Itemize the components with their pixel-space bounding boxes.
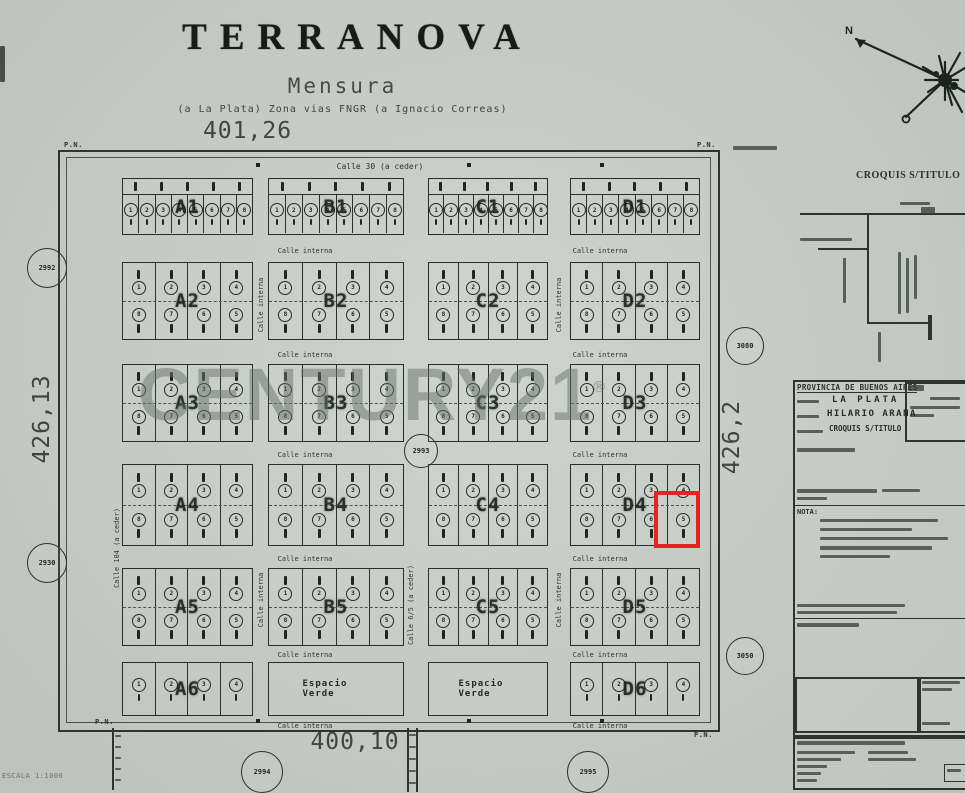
lot-measure-mark bbox=[308, 182, 311, 191]
lot-measure-mark bbox=[202, 270, 205, 279]
lot-measure-mark bbox=[351, 324, 354, 333]
lot-parcel: 5 bbox=[370, 301, 403, 339]
lot-measure-mark bbox=[617, 529, 620, 538]
street-label-vertical: Calle 6/5 (a ceder) bbox=[407, 565, 415, 645]
lot-number: 8 bbox=[580, 308, 594, 322]
lot-measure-mark bbox=[351, 529, 354, 538]
lot-measure-mark bbox=[442, 270, 445, 279]
lot-number: 4 bbox=[229, 484, 243, 498]
lot-measure-mark bbox=[137, 630, 140, 639]
lot-measure-mark bbox=[202, 473, 205, 482]
lot-number: 4 bbox=[229, 587, 243, 601]
lot-measure-mark bbox=[501, 270, 504, 279]
lot-measure-mark bbox=[465, 219, 467, 225]
lot-measure-mark bbox=[134, 182, 137, 191]
lot-measure-mark bbox=[617, 630, 620, 639]
lot-number: 1 bbox=[572, 203, 586, 217]
lot-number: 2 bbox=[444, 203, 458, 217]
lot-number: 3 bbox=[304, 203, 318, 217]
lot-measure-mark bbox=[202, 576, 205, 585]
lot-measure-mark bbox=[617, 426, 620, 435]
lot-number: 8 bbox=[580, 513, 594, 527]
lot-number: 7 bbox=[371, 203, 385, 217]
lot-measure-mark bbox=[227, 219, 229, 225]
lot-measure-mark bbox=[650, 372, 653, 381]
lot-number: 7 bbox=[668, 203, 682, 217]
espacio-verde-block: Espacio Verde bbox=[428, 662, 548, 716]
street-label-calle-interna: Calle interna bbox=[278, 555, 333, 563]
lot-measure-mark bbox=[682, 576, 685, 585]
lot-measure-mark bbox=[318, 270, 321, 279]
lot-measure-mark bbox=[195, 219, 197, 225]
lot-number: 8 bbox=[684, 203, 698, 217]
lot-measure-mark bbox=[450, 219, 452, 225]
lot-measure-mark bbox=[243, 219, 245, 225]
lot-measure-mark bbox=[137, 270, 140, 279]
lot-parcel: 1 bbox=[571, 263, 602, 301]
lot-number: 1 bbox=[436, 484, 450, 498]
lot-number: 5 bbox=[676, 614, 690, 628]
lot-parcel: 4 bbox=[221, 663, 253, 715]
lot-measure-mark bbox=[318, 529, 321, 538]
block-label-A2: A2 bbox=[175, 290, 200, 312]
lot-parcel: 5 bbox=[221, 607, 253, 645]
lot-parcel: 2 bbox=[587, 195, 603, 233]
lot-parcel: 8 bbox=[571, 505, 602, 545]
lot-parcel: 4 bbox=[668, 569, 699, 607]
lot-parcel: 7 bbox=[519, 195, 534, 233]
lot-measure-mark bbox=[442, 324, 445, 333]
lot-parcel: 1 bbox=[269, 465, 302, 505]
lot-measure-mark bbox=[650, 270, 653, 279]
lot-measure-mark bbox=[202, 630, 205, 639]
lot-number: 4 bbox=[380, 587, 394, 601]
lot-number: 4 bbox=[526, 281, 540, 295]
lot-number: 8 bbox=[132, 614, 146, 628]
lot-parcel: 3 bbox=[156, 195, 172, 233]
lot-number: 1 bbox=[278, 587, 292, 601]
lot-measure-mark bbox=[501, 630, 504, 639]
block-label-A5: A5 bbox=[175, 596, 200, 618]
block-C1: 12345678C1 bbox=[428, 178, 548, 235]
street-label-vertical: Calle 104 (a ceder) bbox=[113, 508, 121, 588]
block-label-B2: B2 bbox=[324, 290, 349, 312]
block-label-B1: B1 bbox=[324, 196, 349, 218]
lot-parcel: 1 bbox=[123, 465, 155, 505]
lot-measure-mark bbox=[170, 324, 173, 333]
block-label-D6: D6 bbox=[623, 678, 648, 700]
lot-number: 1 bbox=[132, 281, 146, 295]
lot-measure-mark bbox=[318, 576, 321, 585]
lot-measure-mark bbox=[501, 324, 504, 333]
lot-number: 5 bbox=[229, 614, 243, 628]
lot-measure-mark bbox=[170, 529, 173, 538]
road-hatch bbox=[115, 757, 121, 759]
lot-parcel: 2 bbox=[286, 195, 303, 233]
espacio-verde-label: Espacio Verde bbox=[459, 679, 518, 699]
lot-measure-mark bbox=[501, 473, 504, 482]
lot-parcel: 4 bbox=[518, 263, 547, 301]
lot-measure-mark bbox=[585, 473, 588, 482]
lot-number: 8 bbox=[534, 203, 548, 217]
lot-number: 6 bbox=[205, 203, 219, 217]
lot-number: 8 bbox=[436, 614, 450, 628]
lot-parcel: 3 bbox=[603, 195, 619, 233]
lot-parcel: 6 bbox=[353, 195, 370, 233]
block-label-B5: B5 bbox=[324, 596, 349, 618]
lot-number: 8 bbox=[237, 203, 251, 217]
lot-measure-mark bbox=[385, 630, 388, 639]
lot-measure-mark bbox=[284, 630, 287, 639]
lot-measure-mark bbox=[138, 694, 140, 701]
lot-measure-mark bbox=[650, 473, 653, 482]
block-D6: 1234D6 bbox=[570, 662, 700, 716]
block-label-D2: D2 bbox=[623, 290, 648, 312]
lot-dimension-band bbox=[123, 179, 252, 195]
lot-measure-mark bbox=[585, 576, 588, 585]
lot-parcel: 5 bbox=[518, 607, 547, 645]
street-label-calle-30: Calle 30 (a ceder) bbox=[337, 162, 424, 171]
lot-parcel: 1 bbox=[269, 569, 302, 607]
lot-parcel: 5 bbox=[221, 505, 253, 545]
block-A2: 18273645A2 bbox=[122, 262, 253, 340]
lot-measure-mark bbox=[582, 182, 585, 191]
lot-measure-mark bbox=[327, 219, 329, 225]
block-label-D3: D3 bbox=[623, 392, 648, 414]
lot-parcel: 8 bbox=[429, 505, 458, 545]
lot-measure-mark bbox=[394, 219, 396, 225]
lot-measure-mark bbox=[318, 630, 321, 639]
lot-number: 2 bbox=[140, 203, 154, 217]
lot-parcel: 8 bbox=[429, 301, 458, 339]
lot-number: 8 bbox=[580, 614, 594, 628]
lot-measure-mark bbox=[480, 219, 482, 225]
block-D2: 18273645D2 bbox=[570, 262, 700, 340]
parcel-circle-2930: 2930 bbox=[27, 543, 67, 583]
block-A1: 12345678A1 bbox=[122, 178, 253, 235]
lot-number: 3 bbox=[156, 203, 170, 217]
lot-measure-mark bbox=[617, 576, 620, 585]
lot-number: 8 bbox=[436, 308, 450, 322]
lot-measure-mark bbox=[626, 219, 628, 225]
lot-measure-mark bbox=[585, 529, 588, 538]
lot-number: 4 bbox=[229, 678, 243, 692]
lot-parcel: 4 bbox=[370, 465, 403, 505]
block-label-A4: A4 bbox=[175, 494, 200, 516]
lot-measure-mark bbox=[318, 473, 321, 482]
lot-measure-mark bbox=[351, 630, 354, 639]
lot-measure-mark bbox=[284, 324, 287, 333]
lot-parcel: 5 bbox=[518, 505, 547, 545]
lot-measure-mark bbox=[531, 630, 534, 639]
lot-measure-mark bbox=[377, 219, 379, 225]
lot-measure-mark bbox=[130, 219, 132, 225]
block-label-A6: A6 bbox=[175, 678, 200, 700]
lot-parcel: 8 bbox=[269, 301, 302, 339]
lot-number: 1 bbox=[436, 281, 450, 295]
road-hatch bbox=[409, 734, 416, 736]
lot-number: 8 bbox=[436, 513, 450, 527]
lot-parcel: 8 bbox=[429, 607, 458, 645]
street-label-vertical: Calle interna bbox=[257, 278, 265, 333]
lot-measure-mark bbox=[351, 473, 354, 482]
lot-number: 4 bbox=[380, 484, 394, 498]
lot-measure-mark bbox=[594, 219, 596, 225]
lot-number: 5 bbox=[380, 308, 394, 322]
lot-measure-mark bbox=[388, 182, 391, 191]
lot-measure-mark bbox=[442, 529, 445, 538]
lot-measure-mark bbox=[682, 630, 685, 639]
lot-measure-mark bbox=[617, 473, 620, 482]
road-hatch bbox=[115, 735, 121, 737]
lot-parcel: 7 bbox=[370, 195, 387, 233]
lot-number: 8 bbox=[278, 513, 292, 527]
scanned-survey-plan: TERRANOVA Mensura (a La Plata) Zona vias… bbox=[0, 0, 965, 793]
intersection-tick bbox=[256, 163, 260, 167]
lot-dimension-band bbox=[429, 179, 547, 195]
lot-parcel: 4 bbox=[668, 365, 699, 403]
lot-measure-mark bbox=[495, 219, 497, 225]
lot-measure-mark bbox=[202, 324, 205, 333]
lot-measure-mark bbox=[351, 576, 354, 585]
street-label-calle-interna: Calle interna bbox=[573, 722, 628, 730]
lot-parcel: 4 bbox=[518, 465, 547, 505]
lot-measure-mark bbox=[531, 576, 534, 585]
lot-measure-mark bbox=[276, 219, 278, 225]
road-hatch bbox=[115, 768, 121, 770]
lot-number: 7 bbox=[221, 203, 235, 217]
lot-number: 4 bbox=[676, 587, 690, 601]
street-label-calle-interna: Calle interna bbox=[573, 555, 628, 563]
street-label-calle-interna: Calle interna bbox=[278, 247, 333, 255]
lot-measure-mark bbox=[472, 324, 475, 333]
intersection-tick bbox=[467, 163, 471, 167]
lot-parcel: 4 bbox=[518, 569, 547, 607]
block-D5: 18273645D5 bbox=[570, 568, 700, 646]
lot-measure-mark bbox=[235, 694, 237, 701]
lot-measure-mark bbox=[610, 219, 612, 225]
lot-measure-mark bbox=[385, 324, 388, 333]
block-C5: 18273645C5 bbox=[428, 568, 548, 646]
lot-measure-mark bbox=[170, 270, 173, 279]
lot-parcel: 1 bbox=[269, 195, 286, 233]
lot-parcel: 6 bbox=[204, 195, 220, 233]
intersection-tick bbox=[467, 719, 471, 723]
block-D1: 12345678D1 bbox=[570, 178, 700, 235]
parcel-circle-2995: 2995 bbox=[567, 751, 609, 793]
lot-measure-mark bbox=[617, 372, 620, 381]
road-hatch bbox=[115, 779, 121, 781]
lot-parcel: 8 bbox=[237, 195, 252, 233]
street-label-calle-interna: Calle interna bbox=[278, 651, 333, 659]
lot-measure-mark bbox=[162, 219, 164, 225]
lot-measure-mark bbox=[281, 182, 284, 191]
lot-number: 1 bbox=[429, 203, 443, 217]
watermark: CENTURY21® bbox=[138, 352, 605, 437]
lot-measure-mark bbox=[137, 324, 140, 333]
lot-measure-mark bbox=[137, 473, 140, 482]
lot-parcel: 7 bbox=[221, 195, 237, 233]
lot-parcel: 8 bbox=[123, 505, 155, 545]
road-hatch bbox=[115, 746, 121, 748]
lot-measure-mark bbox=[385, 270, 388, 279]
intersection-tick bbox=[600, 719, 604, 723]
lot-number: 4 bbox=[380, 281, 394, 295]
lot-parcel: 2 bbox=[139, 195, 155, 233]
lot-number: 1 bbox=[580, 678, 594, 692]
lot-measure-mark bbox=[534, 182, 537, 191]
lot-parcel: 1 bbox=[571, 663, 603, 715]
lot-measure-mark bbox=[146, 219, 148, 225]
lot-parcel: 8 bbox=[387, 195, 403, 233]
lot-measure-mark bbox=[685, 182, 688, 191]
lot-parcel: 6 bbox=[652, 195, 668, 233]
lot-number: 3 bbox=[459, 203, 473, 217]
lot-parcel: 4 bbox=[370, 569, 403, 607]
lot-measure-mark bbox=[531, 473, 534, 482]
espacio-verde-block: Espacio Verde bbox=[268, 662, 404, 716]
lot-parcel: 8 bbox=[571, 301, 602, 339]
lot-parcel: 4 bbox=[668, 663, 699, 715]
block-C2: 18273645C2 bbox=[428, 262, 548, 340]
lot-number: 1 bbox=[580, 281, 594, 295]
lot-number: 4 bbox=[676, 281, 690, 295]
lot-number: 4 bbox=[526, 484, 540, 498]
lot-parcel: 4 bbox=[221, 263, 253, 301]
parcel-circle-2994: 2994 bbox=[241, 751, 283, 793]
intersection-tick bbox=[256, 719, 260, 723]
lot-measure-mark bbox=[650, 426, 653, 435]
lot-measure-mark bbox=[442, 473, 445, 482]
lot-parcel: 8 bbox=[269, 607, 302, 645]
lot-measure-mark bbox=[633, 182, 636, 191]
lot-number: 1 bbox=[132, 587, 146, 601]
block-B5: 18273645B5 bbox=[268, 568, 404, 646]
lot-parcel: 4 bbox=[221, 465, 253, 505]
lot-measure-mark bbox=[442, 630, 445, 639]
block-B4: 18273645B4 bbox=[268, 464, 404, 546]
block-B2: 18273645B2 bbox=[268, 262, 404, 340]
road-hatch bbox=[409, 758, 416, 760]
lot-measure-mark bbox=[650, 630, 653, 639]
lot-parcel: 5 bbox=[668, 403, 699, 441]
lot-measure-mark bbox=[585, 630, 588, 639]
street-label-calle-interna: Calle interna bbox=[573, 651, 628, 659]
lot-number: 1 bbox=[124, 203, 138, 217]
block-label-C2: C2 bbox=[476, 290, 501, 312]
lot-measure-mark bbox=[284, 576, 287, 585]
lot-parcel: 4 bbox=[370, 263, 403, 301]
lot-measure-mark bbox=[682, 270, 685, 279]
block-label-D4: D4 bbox=[623, 494, 648, 516]
lot-number: 8 bbox=[278, 614, 292, 628]
block-B1: 12345678B1 bbox=[268, 178, 404, 235]
lot-measure-mark bbox=[472, 630, 475, 639]
road-hatch bbox=[409, 746, 416, 748]
block-A6: 1234A6 bbox=[122, 662, 253, 716]
lot-measure-mark bbox=[682, 426, 685, 435]
lot-number: 1 bbox=[132, 678, 146, 692]
lot-parcel: 1 bbox=[571, 465, 602, 505]
lot-measure-mark bbox=[235, 630, 238, 639]
watermark-registered-icon: ® bbox=[593, 379, 605, 396]
lot-number: 5 bbox=[676, 410, 690, 424]
lot-number: 1 bbox=[580, 587, 594, 601]
lot-parcel: 5 bbox=[518, 301, 547, 339]
lot-number: 1 bbox=[580, 484, 594, 498]
lot-dimension-band bbox=[269, 179, 403, 195]
lot-parcel: 4 bbox=[668, 263, 699, 301]
lot-measure-mark bbox=[682, 324, 685, 333]
block-C4: 18273645C4 bbox=[428, 464, 548, 546]
lot-measure-mark bbox=[642, 219, 644, 225]
lot-number: 5 bbox=[229, 513, 243, 527]
lot-measure-mark bbox=[501, 529, 504, 538]
lot-measure-mark bbox=[586, 694, 588, 701]
lot-parcel: 1 bbox=[123, 663, 156, 715]
block-label-B4: B4 bbox=[324, 494, 349, 516]
lot-measure-mark bbox=[650, 576, 653, 585]
lot-parcel: 1 bbox=[123, 263, 155, 301]
lot-parcel: 5 bbox=[668, 301, 699, 339]
road-hatch bbox=[409, 770, 416, 772]
block-label-C4: C4 bbox=[476, 494, 501, 516]
lot-measure-mark bbox=[310, 219, 312, 225]
parcel-circle-2993: 2993 bbox=[404, 434, 438, 468]
lot-parcel: 1 bbox=[429, 569, 458, 607]
lot-parcel: 8 bbox=[123, 607, 155, 645]
lot-parcel: 8 bbox=[269, 505, 302, 545]
lot-measure-mark bbox=[435, 219, 437, 225]
lot-parcel: 3 bbox=[303, 195, 320, 233]
street-label-vertical: Calle interna bbox=[555, 278, 563, 333]
street-label-vertical: Calle interna bbox=[555, 573, 563, 628]
lot-parcel: 6 bbox=[504, 195, 519, 233]
lot-measure-mark bbox=[235, 473, 238, 482]
lot-measure-mark bbox=[439, 182, 442, 191]
lot-measure-mark bbox=[137, 529, 140, 538]
lot-parcel: 5 bbox=[370, 505, 403, 545]
lot-measure-mark bbox=[137, 576, 140, 585]
lot-measure-mark bbox=[472, 270, 475, 279]
lot-measure-mark bbox=[170, 694, 172, 701]
lot-measure-mark bbox=[650, 694, 652, 701]
lot-measure-mark bbox=[202, 529, 205, 538]
lot-measure-mark bbox=[585, 270, 588, 279]
block-A4: 18273645A4 bbox=[122, 464, 253, 546]
lot-measure-mark bbox=[682, 694, 684, 701]
lot-measure-mark bbox=[343, 219, 345, 225]
lot-number: 5 bbox=[380, 513, 394, 527]
block-label-D1: D1 bbox=[623, 196, 648, 218]
lot-measure-mark bbox=[351, 270, 354, 279]
street-label-calle-interna: Calle interna bbox=[573, 451, 628, 459]
lot-number: 6 bbox=[354, 203, 368, 217]
lot-measure-mark bbox=[235, 270, 238, 279]
lot-measure-mark bbox=[463, 182, 466, 191]
lot-measure-mark bbox=[682, 372, 685, 381]
lot-parcel: 5 bbox=[221, 301, 253, 339]
lot-measure-mark bbox=[160, 182, 163, 191]
lot-parcel: 1 bbox=[123, 569, 155, 607]
lot-measure-mark bbox=[361, 182, 364, 191]
espacio-verde-label: Espacio Verde bbox=[303, 679, 370, 699]
lot-measure-mark bbox=[235, 576, 238, 585]
lot-measure-mark bbox=[531, 270, 534, 279]
lot-measure-mark bbox=[238, 182, 241, 191]
corner-point-label: P.N. bbox=[694, 731, 713, 739]
lot-measure-mark bbox=[531, 324, 534, 333]
